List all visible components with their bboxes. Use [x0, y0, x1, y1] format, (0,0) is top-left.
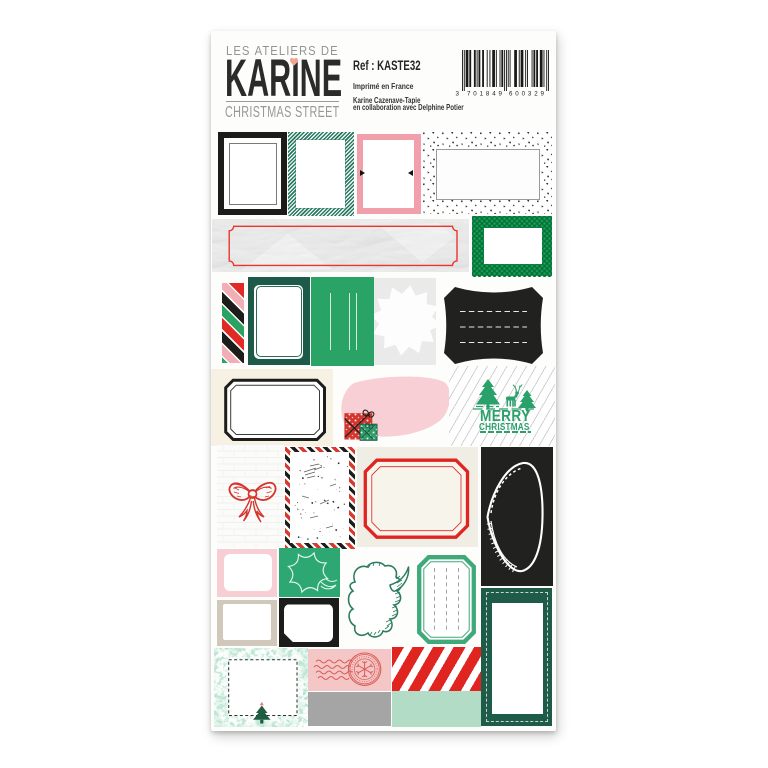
svg-text:600329: 600329: [509, 91, 545, 98]
svg-text:3: 3: [456, 91, 460, 98]
svg-text:701849: 701849: [467, 91, 503, 98]
